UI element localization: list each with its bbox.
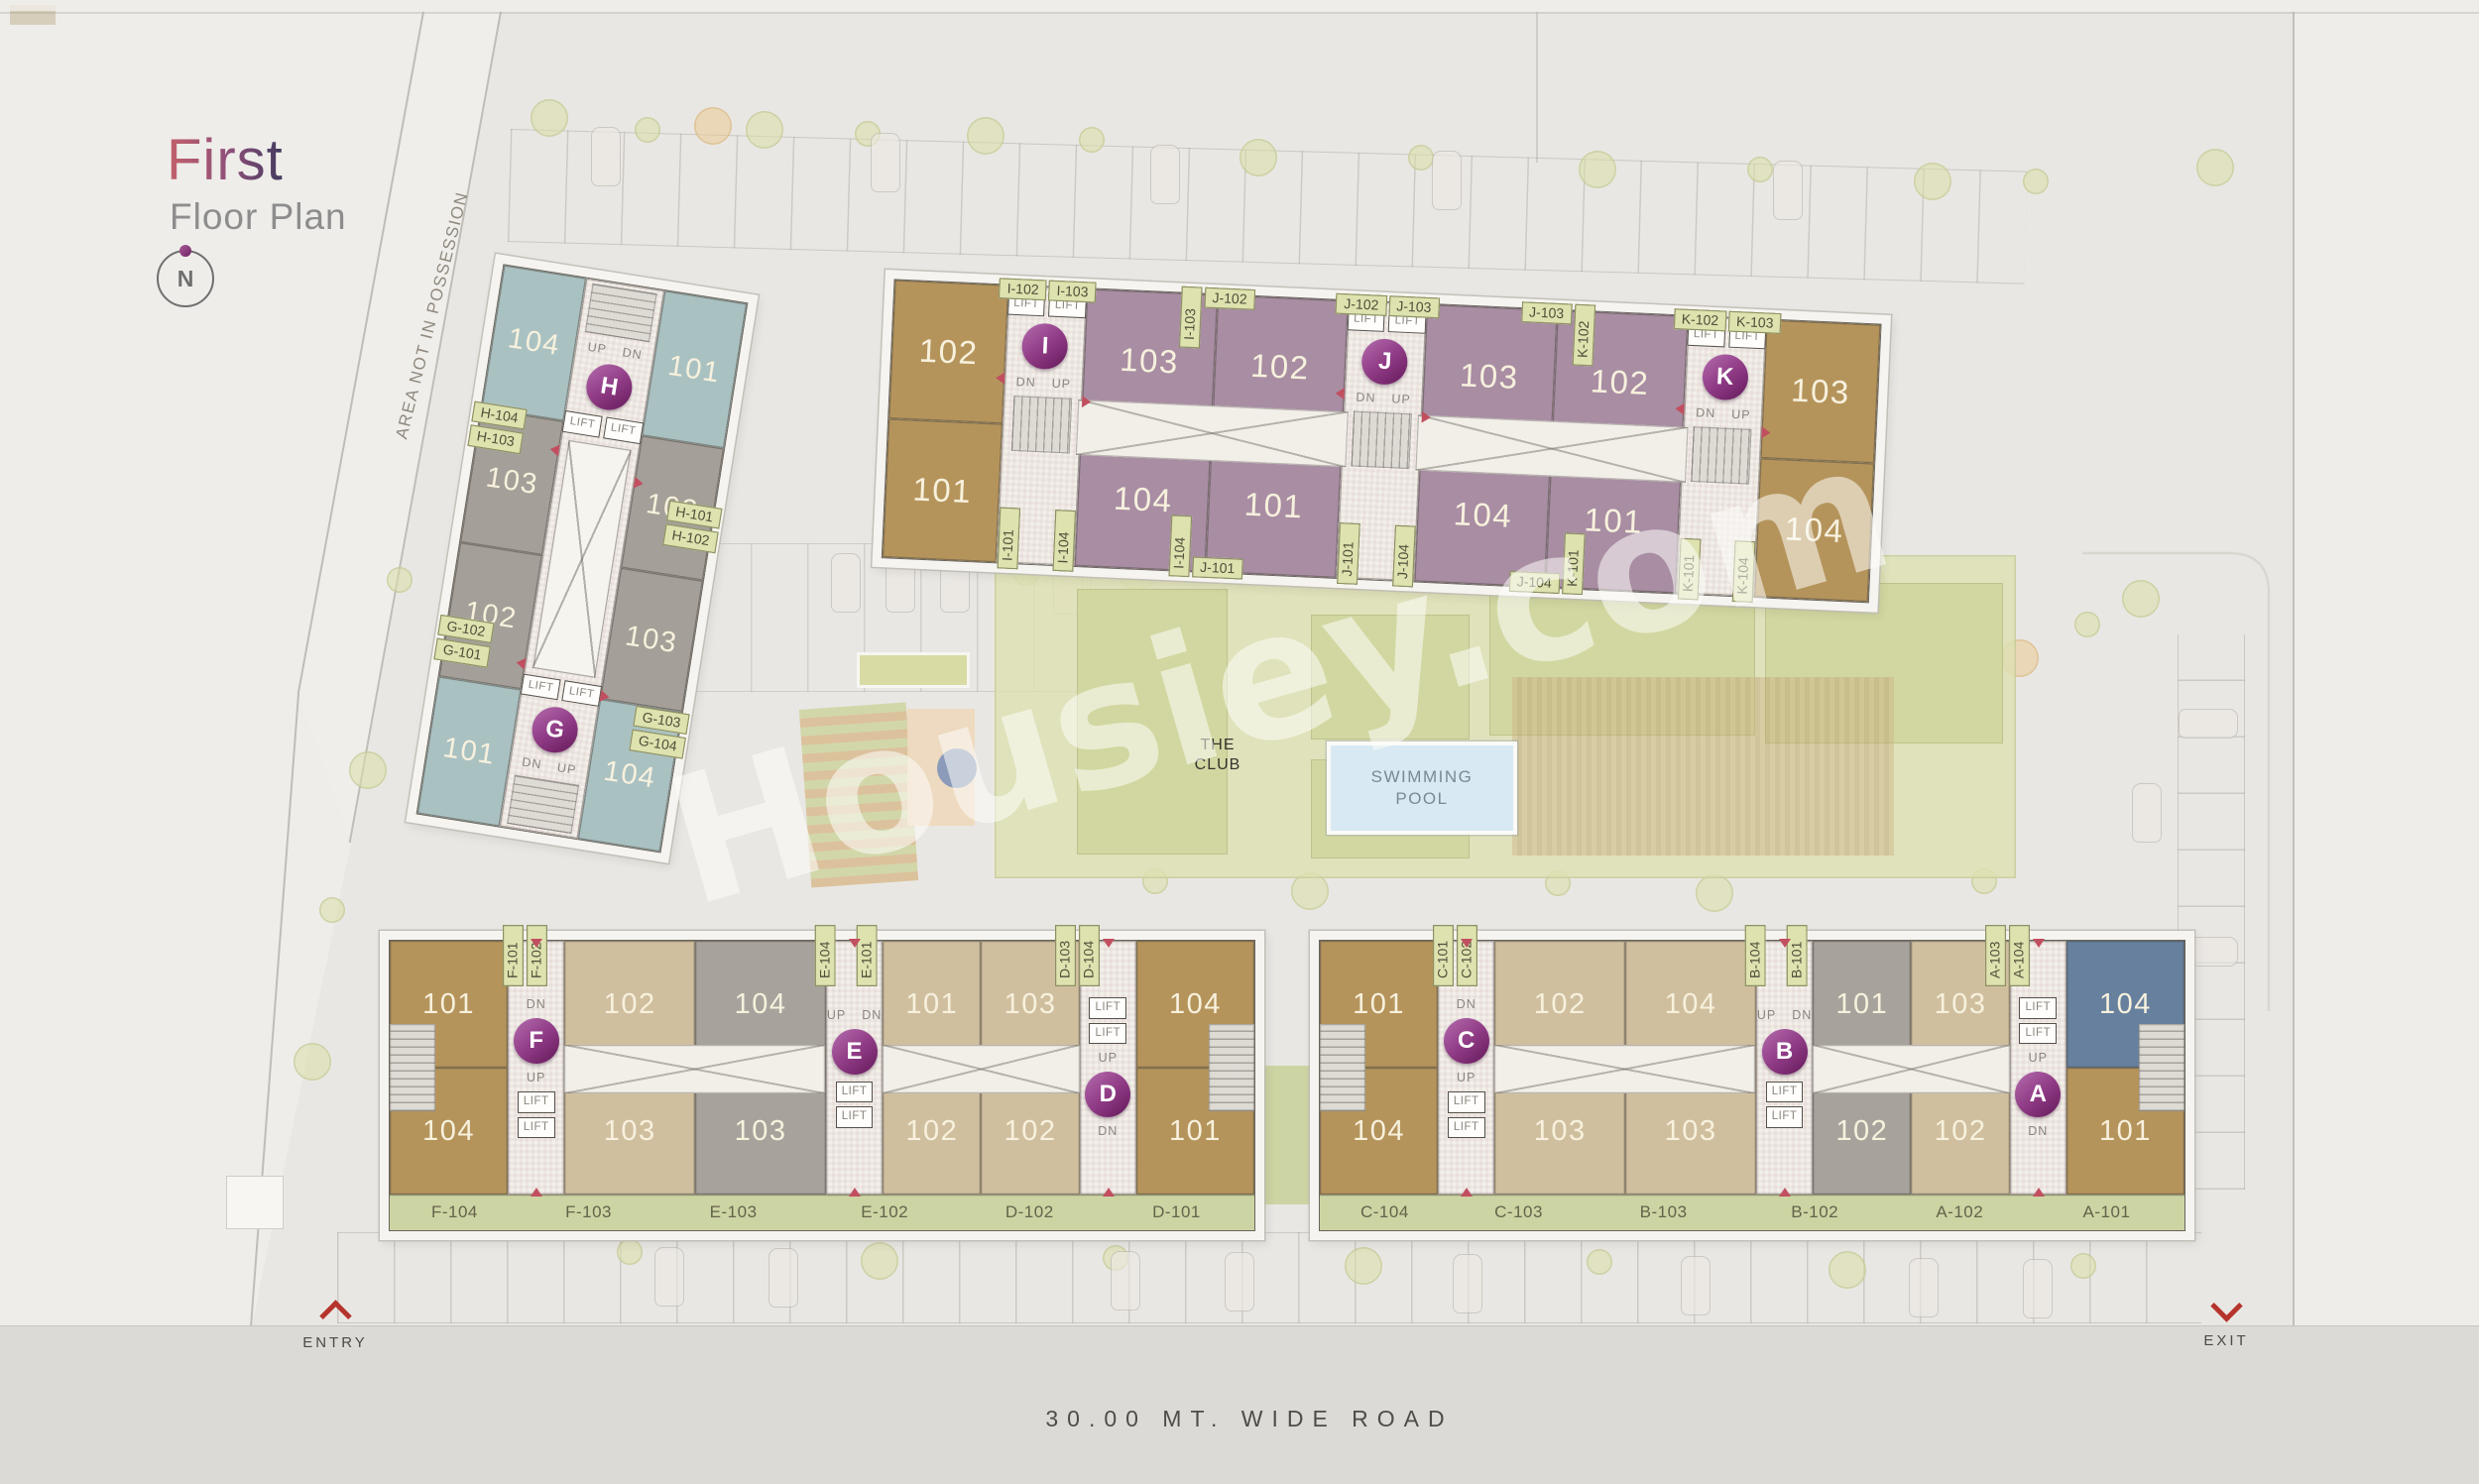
core-badge-j: J — [1361, 337, 1409, 385]
core-d: D-103 D-104 LIFT LIFT UP D DN — [1080, 941, 1136, 1195]
unit-number: 102 — [1935, 1115, 1987, 1148]
unit-number: 101 — [912, 470, 973, 511]
exit-label: EXIT — [2203, 1332, 2248, 1349]
unit-tag: J-104 — [1392, 525, 1416, 588]
building-ijk: 102 101 I-102 I-103 LIFT LIFT I DNUP I-1… — [872, 270, 1891, 613]
club-label: THECLUB — [1178, 736, 1257, 775]
lift-column: LIFT LIFT — [1089, 997, 1126, 1044]
corner-logo — [10, 5, 56, 25]
core-f-tags: F-101 F-102 — [503, 925, 547, 986]
entry-arrow-icon — [1675, 402, 1685, 414]
unit-number: 102 — [905, 1115, 958, 1148]
stairs — [2139, 1024, 2184, 1111]
boundary-tags-ij-top: I-103 J-102 — [1179, 286, 1255, 351]
podium-label: B-102 — [1739, 1202, 1891, 1222]
car-icon — [1150, 145, 1180, 204]
unit-tag: K-103 — [1728, 311, 1782, 335]
updn-label: UP — [2029, 1051, 2048, 1065]
stairs — [1691, 426, 1751, 485]
core-i-tags-top: I-102 I-103 — [999, 278, 1097, 303]
core-i-tags-bottom: I-101 I-104 — [997, 507, 1076, 571]
building-ijk-inner: 102 101 I-102 I-103 LIFT LIFT I DNUP I-1… — [882, 279, 1882, 603]
property-line — [1536, 12, 1538, 163]
page-title: First — [167, 127, 284, 193]
unit-tag: E-101 — [856, 925, 877, 986]
updn-label: DN — [527, 997, 546, 1011]
lawn-patch — [1311, 615, 1470, 740]
fed-end-left: 101 104 — [390, 941, 508, 1195]
boundary-tags-ij-bottom: I-104 J-101 — [1168, 514, 1244, 579]
unit-tag: J-103 — [1521, 301, 1573, 325]
entry-arrow-icon — [2033, 939, 2045, 948]
unit-number: 103 — [1534, 1115, 1587, 1148]
unit-number: 102 — [1590, 362, 1650, 402]
lift-label: LIFT — [2019, 1023, 2057, 1045]
updn-label: DN — [1457, 997, 1476, 1011]
road-label: 30.00 MT. WIDE ROAD — [1045, 1406, 1453, 1432]
entry-arrow-icon — [1103, 939, 1115, 948]
unit-number: 101 — [1835, 988, 1888, 1021]
building-cba: 101 104 C-101 C-102 DN C UP LIFT LIFT — [1310, 931, 2194, 1240]
unit: 102 — [888, 280, 1008, 423]
lift-column: LIFT LIFT — [1766, 1082, 1804, 1128]
unit-number: 101 — [2099, 1115, 2152, 1148]
fed-units-row: 101 104 F-101 F-102 DN F UP LIFT LIFT — [390, 941, 1254, 1195]
lift-label: LIFT — [1448, 1091, 1485, 1113]
core-badge-a: A — [2015, 1072, 2061, 1117]
core-badge-f: F — [514, 1018, 559, 1064]
unit-tag: A-104 — [2008, 925, 2029, 986]
car-icon — [1909, 1258, 1939, 1317]
entry-arrow-icon — [1335, 388, 1345, 400]
cba-end-right: 104 101 — [2066, 941, 2184, 1195]
podium-label: D-102 — [961, 1202, 1100, 1222]
entry-arrow-icon — [1082, 396, 1092, 407]
entry-arrow-icon — [1761, 426, 1771, 438]
core-a-tags: A-103 A-104 — [1985, 925, 2030, 986]
updn-label: UPDN — [587, 340, 644, 362]
core-badge-i: I — [1021, 322, 1069, 370]
utility-structure — [226, 1176, 284, 1229]
car-icon — [1681, 1256, 1711, 1315]
tree-icon — [694, 107, 732, 145]
entry-arrow-icon — [633, 477, 644, 490]
unit-number: 102 — [1249, 347, 1310, 388]
unit-tag: E-104 — [814, 925, 835, 986]
cba-podium-band: C-104 C-103 B-103 B-102 A-102 A-101 — [1320, 1195, 2184, 1230]
tree-icon — [1696, 874, 1733, 912]
unit-tag: D-104 — [1078, 925, 1099, 986]
entry-arrow-icon — [549, 443, 560, 456]
unit-tag: A-103 — [1985, 925, 2006, 986]
road — [0, 1325, 2479, 1484]
core-badge-g: G — [529, 704, 581, 756]
unit: 101 — [883, 418, 1003, 562]
updn-label: DN — [2028, 1124, 2048, 1138]
core-a: A-103 A-104 LIFT LIFT UP A DN — [2010, 941, 2066, 1195]
core-j-tags-bottom: J-101 J-104 — [1337, 522, 1416, 587]
core-k-tags-bottom: K-101 K-104 — [1677, 538, 1756, 603]
tree-icon — [861, 1242, 898, 1280]
entry-arrow-icon — [599, 690, 610, 703]
core-b-tag: B-101 — [1786, 925, 1807, 986]
entry-arrow-icon — [2033, 1188, 2045, 1197]
entry-label: ENTRY — [302, 1334, 368, 1351]
unit-tag: J-102 — [1204, 287, 1255, 311]
car-icon — [831, 553, 861, 613]
core-e-tag: E-101 — [856, 925, 877, 986]
podium-label: F-103 — [520, 1202, 658, 1222]
tree-icon — [617, 1239, 643, 1265]
car-icon — [1111, 1251, 1140, 1311]
podium-label: E-102 — [809, 1202, 961, 1222]
unit-number: 101 — [665, 349, 722, 390]
core-badge-b: B — [1762, 1029, 1808, 1075]
core-badge-h: H — [583, 361, 636, 413]
unit-number: 104 — [1353, 1115, 1405, 1148]
floor-plan-canvas: SWIMMINGPOOL THECLUB 104 103 102 101 UPD… — [0, 0, 2479, 1484]
car-icon — [591, 127, 621, 186]
podium-label: D-101 — [1099, 1202, 1254, 1222]
car-icon — [2023, 1259, 2053, 1318]
unit-number: 104 — [506, 323, 562, 364]
tree-icon — [2070, 1253, 2096, 1279]
unit-tag: F-101 — [503, 925, 524, 986]
tree-icon — [319, 897, 345, 923]
unit-number: 101 — [1243, 486, 1304, 526]
podium-label: E-103 — [657, 1202, 809, 1222]
updn-label: UP — [1457, 1071, 1476, 1084]
corridor — [1494, 1045, 1755, 1093]
podium-label: A-101 — [2029, 1202, 2184, 1222]
updn-label: UPDN — [827, 1008, 882, 1022]
boundary-line — [0, 12, 2479, 14]
unit-tag: B-101 — [1786, 925, 1807, 986]
car-icon — [654, 1247, 684, 1307]
corridor — [1813, 1045, 2010, 1093]
updn-label: DNUP — [1015, 375, 1071, 392]
unit-number: 101 — [441, 732, 498, 772]
tree-icon — [746, 111, 783, 149]
entry-arrow-icon — [1103, 1188, 1115, 1197]
tree-icon — [2196, 149, 2234, 186]
unit-number: 103 — [1459, 356, 1519, 397]
lift-row: LIFT LIFT — [521, 673, 602, 707]
unit-tag: K-102 — [1673, 308, 1726, 332]
core-c-tags: C-101 C-102 — [1433, 925, 1477, 986]
fed-end-right: 104 101 — [1136, 941, 1254, 1195]
core-e-tag-left: E-104 — [814, 925, 835, 986]
car-icon — [1773, 161, 1803, 220]
stairs — [390, 1024, 435, 1111]
core-i: I-102 I-103 LIFT LIFT I DNUP I-101 I-104 — [996, 285, 1087, 566]
unit-number: 104 — [2099, 988, 2152, 1021]
tree-icon — [1579, 151, 1616, 188]
unit-number: 102 — [1835, 1115, 1888, 1148]
cba-end-left: 101 104 — [1320, 941, 1438, 1195]
updn-label: UP — [527, 1071, 545, 1084]
podium-label: C-103 — [1450, 1202, 1589, 1222]
boundary-tags-jk-top: J-103 K-102 — [1519, 301, 1595, 366]
unit-number: 101 — [1584, 501, 1644, 541]
core-badge-k: K — [1702, 353, 1749, 400]
unit-number: 104 — [601, 755, 657, 796]
unit-number: 102 — [1534, 988, 1587, 1021]
unit-number: 104 — [1169, 988, 1222, 1021]
core-k: K-102 K-103 LIFT LIFT K DNUP K-101 K-104 — [1676, 316, 1767, 597]
lift-label: LIFT — [562, 410, 603, 437]
play-equipment — [937, 748, 977, 788]
unit-number: 104 — [1665, 988, 1717, 1021]
tree-icon — [967, 117, 1004, 155]
entry-arrow-icon — [1422, 411, 1432, 423]
core-badge-e: E — [832, 1029, 878, 1075]
unit-tags-h-left: H-104 H-103 — [467, 400, 528, 454]
car-icon — [871, 133, 900, 192]
lift-label: LIFT — [1766, 1106, 1804, 1128]
unit-number: 103 — [604, 1115, 656, 1148]
podium-label: C-104 — [1320, 1202, 1450, 1222]
unit-tag: K-101 — [1561, 532, 1585, 595]
unit-tag: F-102 — [526, 925, 546, 986]
entry-arrow-icon — [1779, 1188, 1791, 1197]
boundary-tags-jk-bottom: J-104 K-101 — [1508, 530, 1585, 595]
entry-arrow-icon — [531, 939, 542, 948]
car-icon — [768, 1248, 798, 1308]
swimming-pool-label: SWIMMINGPOOL — [1371, 766, 1474, 810]
core-d-tags: D-103 D-104 — [1055, 925, 1100, 986]
unit-tag: C-101 — [1433, 925, 1454, 986]
lift-label: LIFT — [521, 673, 561, 700]
corridor — [883, 1045, 1080, 1093]
unit-number: 103 — [1665, 1115, 1717, 1148]
core-e: E-104 E-101 UPDN E LIFT LIFT — [826, 941, 883, 1195]
core-b-tag-left: B-104 — [1744, 925, 1765, 986]
stairs — [1352, 410, 1412, 469]
unit-number: 101 — [1169, 1115, 1222, 1148]
updn-label: UP — [1099, 1051, 1118, 1065]
unit-tag: I-104 — [1052, 510, 1076, 572]
fed-podium-band: F-104 F-103 E-103 E-102 D-102 D-101 — [390, 1195, 1254, 1230]
podium-label: A-102 — [1891, 1202, 2030, 1222]
tree-icon — [1829, 1251, 1866, 1289]
unit-tag: I-103 — [1048, 280, 1097, 303]
entry-arrow-icon — [849, 1188, 861, 1197]
core-badge-c: C — [1444, 1018, 1489, 1064]
tree-icon — [1747, 157, 1773, 182]
core-c: C-101 C-102 DN C UP LIFT LIFT — [1438, 941, 1494, 1195]
tree-icon — [1408, 145, 1434, 171]
core-badge-d: D — [1085, 1072, 1130, 1117]
compass-icon: N — [157, 250, 214, 307]
entry-arrow-icon — [1461, 939, 1473, 948]
tree-icon — [1587, 1249, 1612, 1275]
tree-icon — [2023, 169, 2049, 194]
lift-column: LIFT LIFT — [518, 1091, 555, 1138]
updn-label: DNUP — [521, 755, 577, 777]
tree-icon — [1345, 1247, 1382, 1285]
tree-icon — [387, 567, 413, 593]
lift-label: LIFT — [603, 416, 644, 443]
building-cba-inner: 101 104 C-101 C-102 DN C UP LIFT LIFT — [1319, 940, 2185, 1231]
core-b: B-104 B-101 UPDN B LIFT LIFT — [1756, 941, 1813, 1195]
compass-north-dot — [179, 245, 191, 257]
updn-label: UPDN — [1757, 1008, 1812, 1022]
unit-tag: I-101 — [997, 507, 1020, 569]
unit-tag: J-104 — [1508, 570, 1560, 594]
unit-tag: C-102 — [1456, 925, 1476, 986]
pool-deck — [1512, 677, 1894, 856]
unit-tag: I-103 — [1179, 286, 1203, 349]
unit-number: 102 — [604, 988, 656, 1021]
compass-n-label: N — [177, 266, 194, 292]
tree-icon — [635, 117, 660, 143]
lift-label: LIFT — [518, 1091, 555, 1113]
unit-number: 103 — [484, 461, 540, 502]
updn-label: DNUP — [1356, 390, 1411, 406]
lift-label: LIFT — [836, 1082, 874, 1103]
entry-arrow-icon — [849, 939, 861, 948]
unit-tag: I-102 — [999, 278, 1047, 301]
unit-number: 103 — [735, 1115, 787, 1148]
unit: 103 — [1761, 319, 1881, 463]
lawn-patch — [1077, 589, 1228, 855]
unit-number: 101 — [422, 988, 475, 1021]
entry-arrow-icon — [1461, 1188, 1473, 1197]
entry-arrow-icon — [996, 372, 1005, 384]
unit-tags-g-left: G-102 G-101 — [433, 615, 494, 668]
unit-number: 102 — [918, 332, 979, 373]
unit-number: 103 — [1119, 341, 1179, 382]
podium-label: F-104 — [390, 1202, 520, 1222]
lift-label: LIFT — [1448, 1117, 1485, 1139]
unit-number: 103 — [1790, 372, 1850, 412]
core-f: F-101 F-102 DN F UP LIFT LIFT — [508, 941, 564, 1195]
lift-label: LIFT — [1089, 1023, 1126, 1045]
tree-icon — [349, 751, 387, 789]
core-j: J-102 J-103 LIFT LIFT J DNUP J-101 J-104 — [1336, 300, 1427, 581]
lift-label: LIFT — [2019, 997, 2057, 1019]
unit-number: 104 — [422, 1115, 475, 1148]
podium-green — [1255, 1066, 1317, 1204]
lift-column: LIFT LIFT — [2019, 997, 2057, 1044]
play-area-stripes — [799, 702, 918, 887]
corridor — [564, 1045, 825, 1093]
unit-tag: J-101 — [1192, 556, 1243, 580]
tree-icon — [294, 1043, 331, 1081]
updn-label: DNUP — [1696, 405, 1751, 422]
unit-number: 101 — [1353, 988, 1405, 1021]
ijk-end-left: 102 101 — [883, 280, 1008, 562]
lift-label: LIFT — [836, 1106, 874, 1128]
tree-icon — [1239, 139, 1277, 176]
car-icon — [1432, 151, 1462, 210]
tree-icon — [1914, 163, 1951, 200]
unit-tag: D-103 — [1055, 925, 1076, 986]
entry-arrow-icon — [1779, 939, 1791, 948]
updn-label: DN — [1098, 1124, 1118, 1138]
unit-number: 104 — [735, 988, 787, 1021]
unit-tag: K-101 — [1677, 538, 1701, 601]
entry-arrow-icon — [531, 1188, 542, 1197]
stairs — [507, 774, 580, 834]
unit-number: 102 — [1004, 1115, 1057, 1148]
unit-tag: J-103 — [1388, 295, 1440, 319]
building-fed: 101 104 F-101 F-102 DN F UP LIFT LIFT — [380, 931, 1264, 1240]
lawn-panel — [857, 652, 970, 688]
podium-label: B-103 — [1588, 1202, 1739, 1222]
lift-label: LIFT — [1766, 1082, 1804, 1103]
unit-tag: B-104 — [1744, 925, 1765, 986]
entry-arrow-icon — [516, 656, 527, 669]
unit-tag: J-102 — [1336, 293, 1387, 317]
stairs — [584, 284, 657, 343]
unit-number: 104 — [1784, 510, 1844, 550]
stairs — [1011, 396, 1072, 454]
unit-tag: K-102 — [1572, 304, 1595, 367]
unit-number: 103 — [623, 620, 679, 660]
unit-tags-g-right: G-103 G-104 — [629, 706, 689, 759]
building-fed-inner: 101 104 F-101 F-102 DN F UP LIFT LIFT — [389, 940, 1255, 1231]
unit-tag: J-101 — [1337, 522, 1360, 585]
ijk-end-right: 103 104 — [1754, 319, 1880, 602]
car-icon — [1225, 1252, 1254, 1312]
lift-label: LIFT — [561, 680, 602, 707]
lift-label: LIFT — [1089, 997, 1126, 1019]
car-icon — [1453, 1254, 1482, 1313]
unit-tags-h-right: H-101 H-102 — [662, 500, 723, 553]
lift-row: LIFT LIFT — [562, 410, 644, 444]
unit-number: 103 — [1935, 988, 1987, 1021]
unit: 104 — [1754, 458, 1874, 602]
unit-number: 104 — [1113, 480, 1173, 520]
unit-tag: K-104 — [1731, 540, 1755, 603]
lift-label: LIFT — [518, 1117, 555, 1139]
stairs — [1320, 1024, 1365, 1111]
page-subtitle: Floor Plan — [170, 196, 347, 238]
unit-number: 101 — [905, 988, 958, 1021]
stairs — [1209, 1024, 1254, 1111]
lift-column: LIFT LIFT — [1448, 1091, 1485, 1138]
unit-number: 103 — [1004, 988, 1057, 1021]
swimming-pool: SWIMMINGPOOL — [1327, 742, 1517, 835]
unit-tag: I-104 — [1168, 514, 1192, 577]
unit-number: 104 — [1453, 495, 1513, 535]
tree-icon — [1079, 127, 1105, 153]
tree-icon — [531, 99, 568, 137]
cba-units-row: 101 104 C-101 C-102 DN C UP LIFT LIFT — [1320, 941, 2184, 1195]
lift-column: LIFT LIFT — [836, 1082, 874, 1128]
